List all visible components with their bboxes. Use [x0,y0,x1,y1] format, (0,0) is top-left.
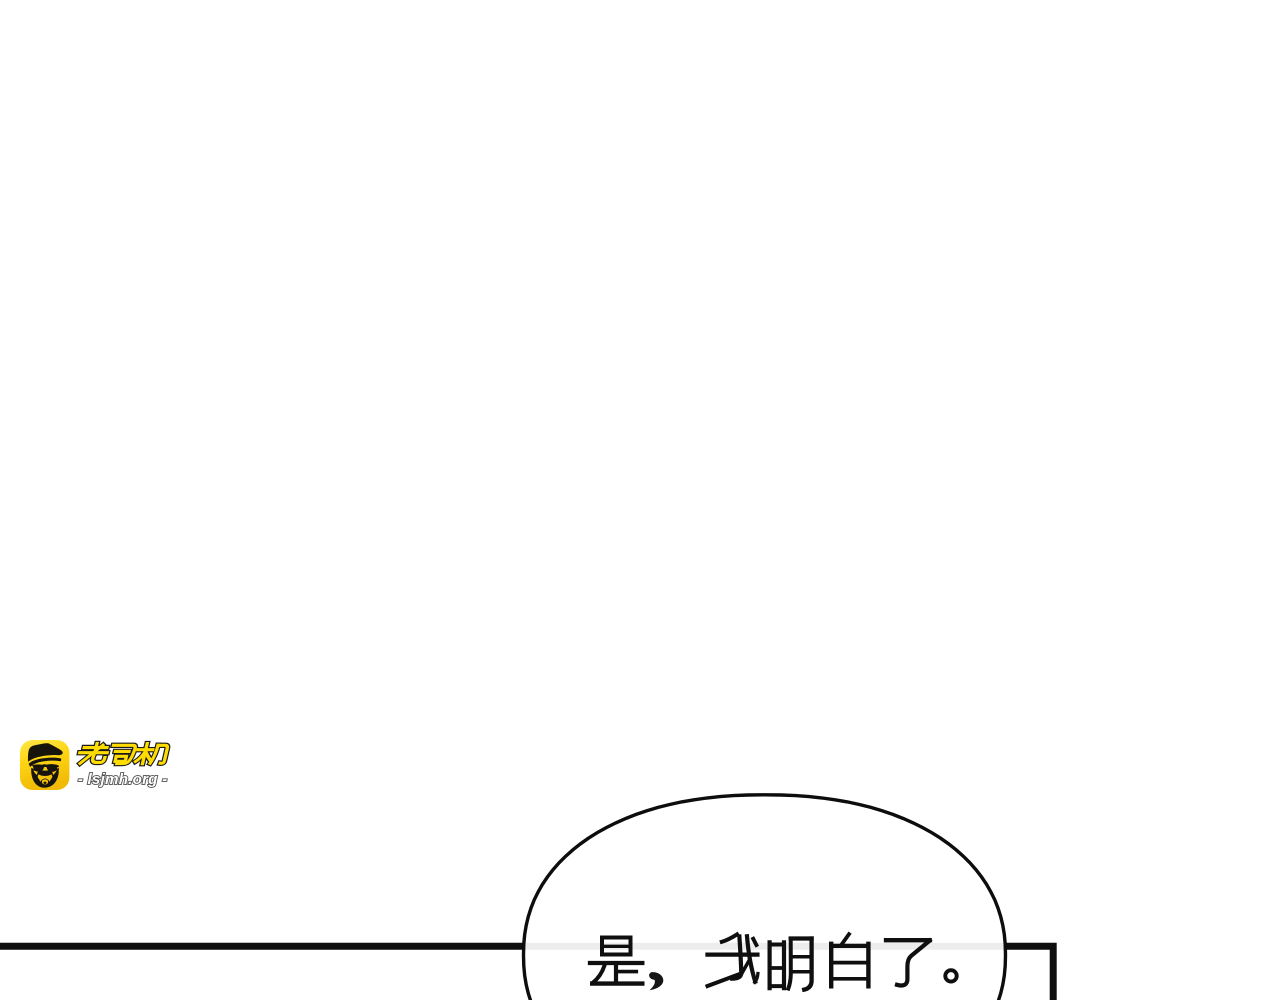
svg-text:- lsjmh.org -: - lsjmh.org - [78,771,168,788]
